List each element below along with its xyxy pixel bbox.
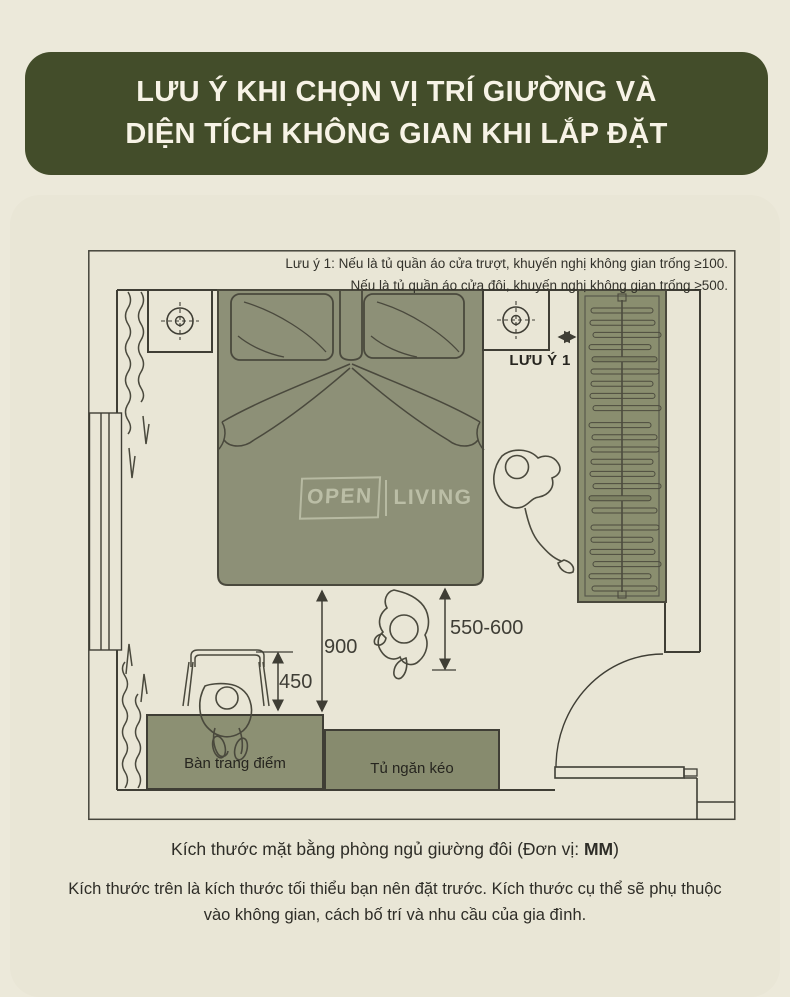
plan-caption: Kích thước mặt bằng phòng ngủ giường đôi… xyxy=(0,839,790,860)
nightstand-right xyxy=(483,290,549,350)
plan-note-line-2: Nếu là tủ quần áo cửa đôi, khuyến nghị k… xyxy=(285,275,728,297)
caption-unit: MM xyxy=(584,839,613,859)
dimension-label-550-600: 550-600 xyxy=(450,617,523,640)
infographic-page: { "banner": { "title_line1": "LƯU Ý KHI … xyxy=(0,0,790,997)
wardrobe-symbol xyxy=(578,290,666,602)
title-banner: LƯU Ý KHI CHỌN VỊ TRÍ GIƯỜNG VÀ DIỆN TÍC… xyxy=(25,52,768,175)
chair-symbol xyxy=(183,650,269,706)
nightstand-left xyxy=(148,290,212,352)
door-symbol xyxy=(555,654,734,820)
footer-note: Kích thước trên là kích thước tối thiểu … xyxy=(55,876,735,928)
title-line-1: LƯU Ý KHI CHỌN VỊ TRÍ GIƯỜNG VÀ xyxy=(136,72,656,113)
plan-note-line-1: Lưu ý 1: Nếu là tủ quần áo cửa trượt, kh… xyxy=(285,253,728,275)
watermark-divider xyxy=(385,480,387,516)
dressing-table-label: Bàn trang điểm xyxy=(147,755,323,772)
curtain-upper-symbol xyxy=(126,292,150,478)
watermark-frame: OPEN xyxy=(299,476,381,519)
bed-symbol xyxy=(218,290,484,585)
callout-label: LƯU Ý 1 xyxy=(498,352,582,369)
person-walking-symbol xyxy=(374,590,428,679)
caption-prefix: Kích thước mặt bằng phòng ngủ giường đôi… xyxy=(171,839,584,859)
title-line-2: DIỆN TÍCH KHÔNG GIAN KHI LẮP ĐẶT xyxy=(125,114,667,155)
brand-watermark: OPEN LIVING xyxy=(300,477,473,519)
watermark-word2: LIVING xyxy=(394,486,473,510)
window-symbol xyxy=(90,413,122,650)
caption-suffix: ) xyxy=(613,839,619,859)
floor-plan-drawing xyxy=(88,250,736,822)
dimension-label-900: 900 xyxy=(324,636,357,659)
drawer-cabinet-label: Tủ ngăn kéo xyxy=(324,760,500,777)
curtain-lower-symbol xyxy=(123,644,148,788)
person-standing-symbol xyxy=(494,450,574,573)
plan-note: Lưu ý 1: Nếu là tủ quần áo cửa trượt, kh… xyxy=(285,253,728,298)
dimension-label-450: 450 xyxy=(279,671,312,694)
